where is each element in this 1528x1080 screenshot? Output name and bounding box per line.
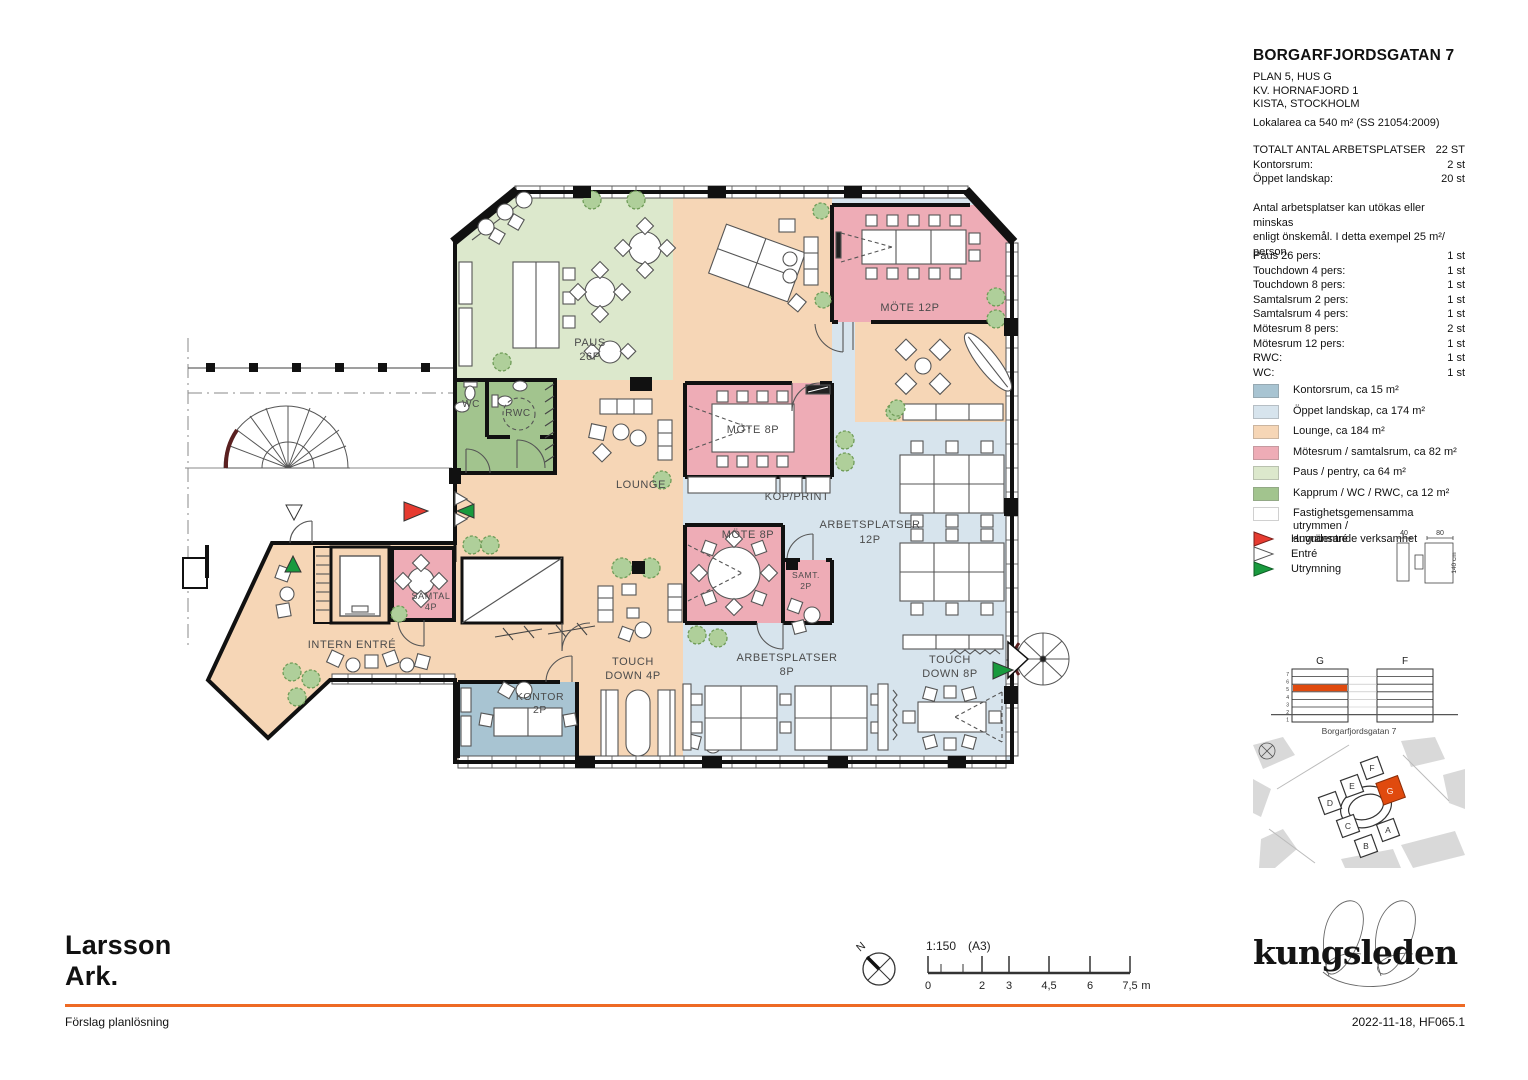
svg-text:A: A bbox=[1385, 825, 1391, 835]
svg-text:0: 0 bbox=[925, 980, 931, 992]
label-kontor: KONTOR bbox=[516, 691, 564, 703]
label-paus: PAUS bbox=[574, 337, 606, 349]
label-arb8: ARBETSPLATSER bbox=[736, 652, 837, 664]
svg-text:12P: 12P bbox=[859, 534, 880, 546]
svg-text:26P: 26P bbox=[579, 351, 600, 363]
label-samtal4: SAMTAL bbox=[412, 591, 451, 601]
legend-chip-lounge bbox=[1253, 425, 1279, 439]
legend-chip-oppet-landskap bbox=[1253, 405, 1279, 419]
svg-text:4: 4 bbox=[1286, 695, 1289, 701]
label-td4: TOUCH bbox=[612, 656, 654, 668]
legend-chip-kontorsrum bbox=[1253, 384, 1279, 398]
utrymning-icon bbox=[1253, 561, 1275, 577]
svg-text:2: 2 bbox=[1286, 710, 1289, 716]
footer-rule bbox=[65, 1004, 1465, 1007]
label-lounge: LOUNGE bbox=[616, 479, 666, 491]
svg-text:2: 2 bbox=[979, 980, 985, 992]
svg-text:DOWN 8P: DOWN 8P bbox=[922, 668, 978, 680]
label-mote8-low: MÖTE 8P bbox=[722, 529, 775, 541]
svg-text:40: 40 bbox=[1400, 530, 1408, 537]
elevator bbox=[340, 556, 380, 616]
svg-text:C: C bbox=[1345, 821, 1351, 831]
svg-text:F: F bbox=[1369, 763, 1374, 773]
room-count-list: Paus 26 pers:1 st Touchdown 4 pers:1 st … bbox=[1253, 249, 1465, 380]
architect-logo: Larsson Ark. bbox=[65, 930, 171, 992]
svg-text:D: D bbox=[1327, 798, 1333, 808]
svg-text:3: 3 bbox=[1006, 980, 1012, 992]
legend-chip-motesrum bbox=[1253, 446, 1279, 460]
highlighted-floor bbox=[1293, 685, 1347, 691]
drawing-sheet: PAUS 26P MÖTE 12P WC RWC LOUNGE MÖTE 8P … bbox=[0, 0, 1528, 1080]
kungsleden-logo: kungsleden bbox=[1253, 876, 1465, 1001]
svg-text:3: 3 bbox=[1286, 702, 1289, 708]
title-column: BORGARFJORDSGATAN 7 PLAN 5, HUS G KV. HO… bbox=[1253, 0, 1465, 1080]
area-note: Lokalarea ca 540 m² (SS 21054:2009) bbox=[1253, 117, 1465, 129]
footer-right: 2022-11-18, HF065.1 bbox=[1352, 1015, 1465, 1029]
svg-text:7: 7 bbox=[1286, 672, 1289, 678]
svg-text:5: 5 bbox=[1286, 687, 1289, 693]
svg-text:G: G bbox=[1387, 786, 1394, 796]
label-rwc: RWC bbox=[505, 408, 531, 419]
svg-text:2P: 2P bbox=[800, 581, 812, 591]
label-wc: WC bbox=[462, 399, 480, 410]
svg-text:4P: 4P bbox=[425, 602, 437, 612]
fan-stair bbox=[224, 406, 350, 468]
neighbour-walls bbox=[183, 545, 207, 588]
workplace-totals: TOTALT ANTAL ARBETSPLATSER22 ST Kontorsr… bbox=[1253, 143, 1465, 187]
svg-text:8P: 8P bbox=[780, 666, 795, 678]
label-mote8-top: MÖTE 8P bbox=[727, 424, 780, 436]
label-td8: TOUCH bbox=[929, 654, 971, 666]
legend-chip-paus bbox=[1253, 466, 1279, 480]
north-compass: N bbox=[854, 940, 895, 985]
svg-text:B: B bbox=[1363, 841, 1369, 851]
scale-ratio: 1:150 bbox=[926, 939, 956, 953]
svg-text:4,5: 4,5 bbox=[1041, 980, 1056, 992]
label-intern-entre: INTERN ENTRÉ bbox=[308, 638, 396, 651]
svg-text:6: 6 bbox=[1286, 680, 1289, 686]
td4-furniture bbox=[601, 690, 675, 756]
footer-left: Förslag planlösning bbox=[65, 1015, 169, 1029]
svg-text:80: 80 bbox=[1436, 530, 1444, 537]
project-address: PLAN 5, HUS G KV. HORNAFJORD 1 KISTA, ST… bbox=[1253, 71, 1465, 112]
label-samt2: SAMT. bbox=[792, 570, 820, 580]
entre-arrow bbox=[286, 505, 302, 520]
scale-bar: 1:150 (A3) 0 2 3 4,5 6 7,5 m bbox=[925, 939, 1151, 992]
svg-text:1: 1 bbox=[1286, 718, 1289, 724]
building-diagram: G F 7 6 5 4 3 2 1 Borgarfjordsgatan 7 bbox=[1253, 652, 1465, 742]
label-arb12: ARBETSPLATSER bbox=[819, 519, 920, 531]
legend-chip-kapprum bbox=[1253, 487, 1279, 501]
project-title: BORGARFJORDSGATAN 7 bbox=[1253, 47, 1465, 65]
furniture-dimensions: 40 80 140 cm bbox=[1395, 527, 1459, 587]
label-mote12: MÖTE 12P bbox=[880, 302, 939, 314]
svg-text:140 cm: 140 cm bbox=[1451, 552, 1458, 573]
scale-unit: m bbox=[1141, 980, 1150, 992]
svg-text:DOWN 4P: DOWN 4P bbox=[605, 670, 661, 682]
svg-text:E: E bbox=[1349, 781, 1355, 791]
site-map: F E D C B A G bbox=[1253, 737, 1465, 868]
svg-text:7,5: 7,5 bbox=[1122, 980, 1137, 992]
logo-wordmark: kungsleden bbox=[1253, 933, 1458, 972]
entre-icon bbox=[1253, 546, 1275, 562]
tower-f-label: F bbox=[1402, 656, 1408, 667]
label-kop-print: KOP/PRINT bbox=[765, 491, 830, 503]
svg-text:6: 6 bbox=[1087, 980, 1093, 992]
huvudentre-icon bbox=[1253, 531, 1275, 547]
legend-chip-fastighet bbox=[1253, 507, 1279, 521]
tower-g-label: G bbox=[1316, 656, 1324, 667]
svg-text:2P: 2P bbox=[533, 704, 547, 716]
scale-paper: (A3) bbox=[968, 939, 991, 953]
compass-n: N bbox=[854, 940, 868, 954]
huvudentre-arrow bbox=[404, 502, 428, 521]
diagram-caption: Borgarfjordsgatan 7 bbox=[1322, 726, 1397, 736]
